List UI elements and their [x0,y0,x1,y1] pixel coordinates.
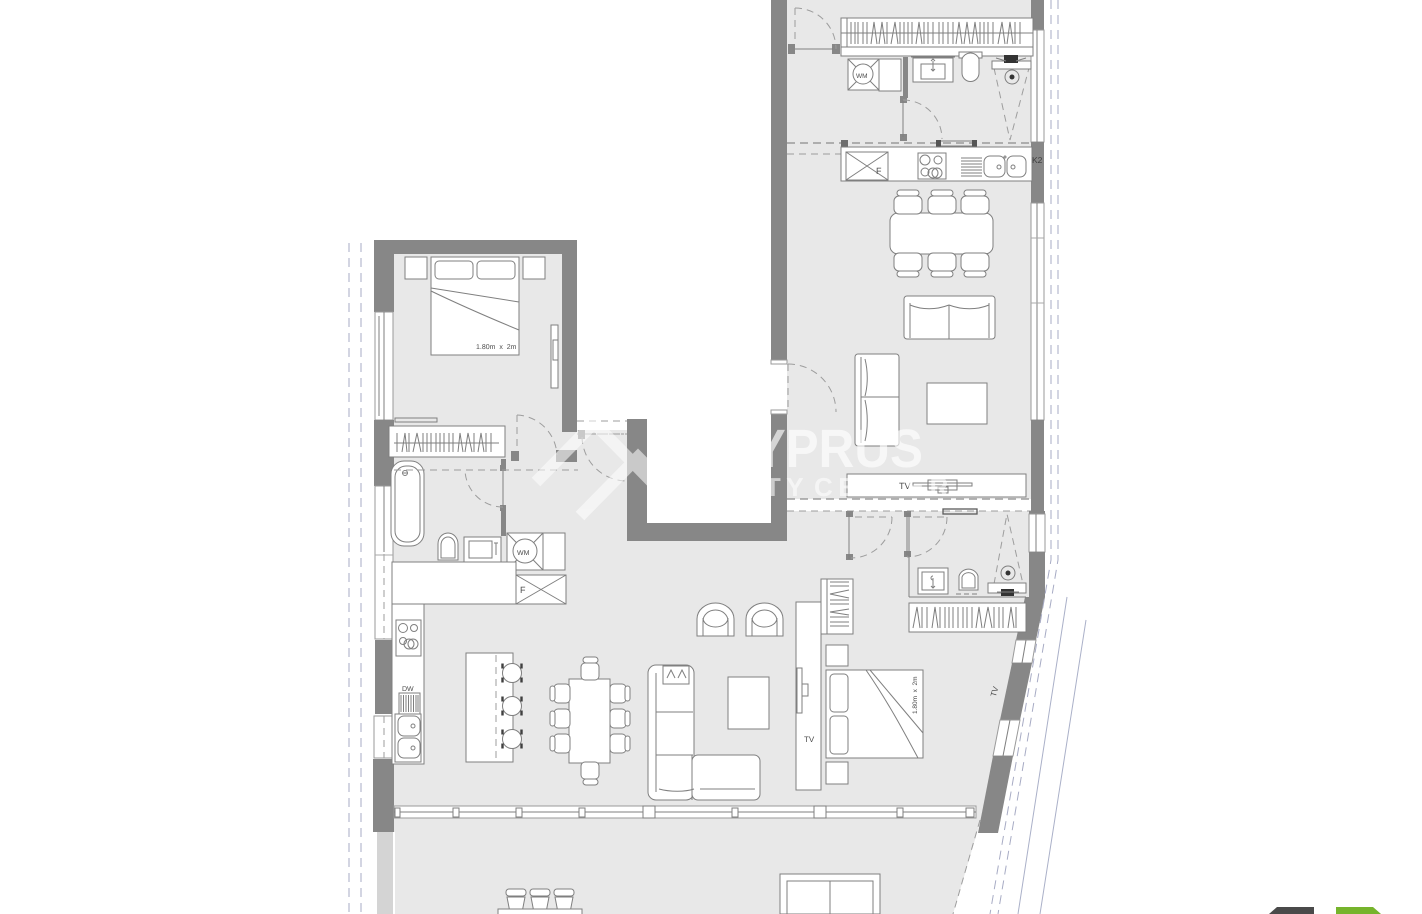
svg-text:F: F [876,166,882,176]
svg-text:1.80m x 2m: 1.80m x 2m [476,344,517,351]
svg-text:CENTER: CENTER [814,472,954,502]
svg-text:REALTY: REALTY [674,472,809,502]
svg-text:K2: K2 [1032,155,1043,165]
svg-text:1.80m x 2m: 1.80m x 2m [912,676,919,714]
svg-text:WM: WM [517,550,530,557]
svg-text:CYPRUS: CYPRUS [717,419,923,479]
svg-text:TV: TV [804,735,815,744]
svg-text:F: F [520,585,526,595]
svg-text:DW: DW [402,686,414,693]
svg-text:WM: WM [856,73,868,80]
